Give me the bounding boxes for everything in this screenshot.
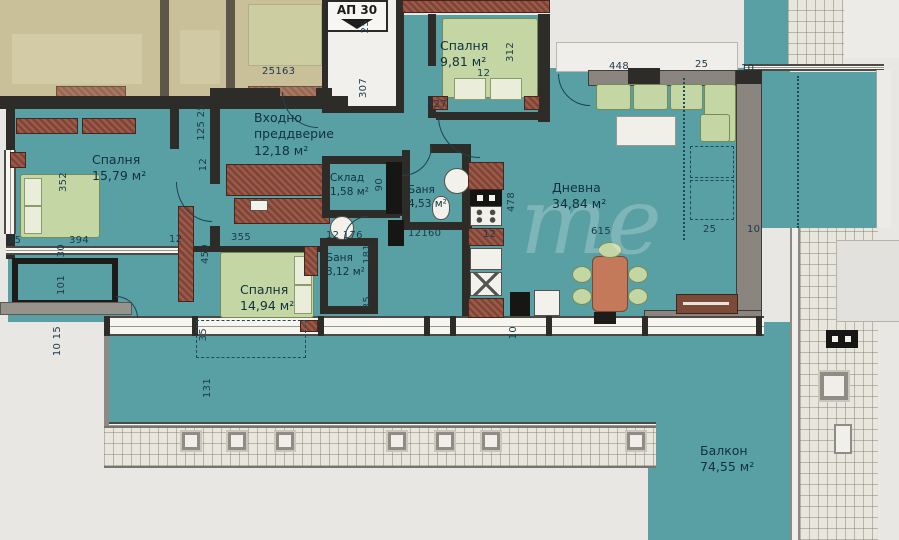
exterior-wall-strip [876,70,891,228]
paving-northeast [788,0,844,66]
room-label-storage: Склад 1,58 м² [330,172,369,199]
dim-label: 12160 [408,228,441,239]
balcony-east-parapet [790,228,800,540]
room-label-bathroom-main: Баня 4,53 м² [408,184,447,211]
neighbor-furniture [180,30,220,84]
dim-label: 352 [58,172,69,192]
neighbor-furniture [12,34,142,84]
exterior-slab [836,240,899,322]
room-area: 14,94 м² [240,298,294,314]
dim-label: 355 [231,232,251,243]
neighbor-furniture [248,4,322,66]
wardrobe [82,118,136,134]
dim-label: 25 [8,235,21,246]
wardrobe [226,164,328,196]
window-post [424,316,430,336]
room-area: 15,79 м² [92,168,146,184]
dim-label: 25 [703,224,716,235]
room-name: Спалня [240,282,294,298]
pillow [294,285,312,314]
marker-dot [832,336,838,342]
room-name: Дневна [552,180,606,196]
wall [316,88,332,96]
wall [160,0,169,100]
sink [444,168,470,194]
floor-plan: АП 30 [0,0,899,540]
duct-shaft [386,162,402,214]
wardrobe [178,206,194,302]
marker-dot [845,336,851,342]
dim-label: 10 15 [52,326,63,356]
projection-line [797,76,799,228]
dining-chair-dark [594,312,616,324]
projection-line [683,78,685,240]
wardrobe [234,198,330,224]
sofa-module [633,84,668,110]
dim-label: 307 [358,78,369,98]
exterior-marker [826,330,858,348]
room-name: Баня [408,184,447,198]
wardrobe [16,118,78,134]
wall [170,109,179,149]
sofa-module [670,84,703,110]
wall-hatched [402,0,550,13]
room-area: 3,12 м² [326,266,365,280]
sideboard [676,294,738,314]
dim-label: 615 [591,226,611,237]
room-label-balcony: Балкон 74,55 м² [700,443,754,476]
pillow [24,178,42,206]
balcony-west-edge [104,322,109,426]
wardrobe-detail [250,200,268,211]
projection-outline [196,320,306,358]
kitchen-counter [468,298,504,318]
dim-label: 90 [374,178,385,191]
window-post [546,316,552,336]
room-label-bedroom-top: Спалня 9,81 м² [440,38,488,71]
dining-chair [628,288,648,305]
room-area: 12,18 м² [254,143,334,159]
dim-label: 459 [200,244,211,264]
wall [628,68,660,84]
pillow [454,78,486,100]
dim-label: 12 [169,234,182,245]
window-post [756,316,762,336]
coffee-table [616,116,676,146]
nightstand [304,246,318,276]
dim-label: 125 25 [196,104,207,141]
cooktop [470,206,502,226]
dim-label: 10 [741,63,754,74]
room-label-entrance: Входно преддверие 12,18 м² [254,110,334,159]
nightstand [524,96,540,110]
dim-label: 394 [69,235,89,246]
dim-label: 25 [360,20,371,33]
dim-label: 25163 [262,66,295,77]
planter [820,372,848,400]
pillow [24,206,42,234]
dining-chair [572,288,592,305]
dim-label: 448 [609,61,629,72]
ground [844,0,899,58]
dim-label: 35 [362,296,373,309]
window-post [642,316,648,336]
floor-balcony-northeast [744,0,790,72]
room-name: Балкон [700,443,754,459]
room-name: Спалня [440,38,488,54]
sideboard-detail [683,302,729,305]
planter [276,432,294,450]
kitchen-counter [468,162,504,190]
dim-label: 35 [198,328,209,341]
dishwasher [534,290,560,316]
wall [218,88,280,96]
unit-label-box: АП 30 [326,0,388,32]
dim-label: 10 [747,224,760,235]
room-area: 4,53 м² [408,198,447,212]
planter [627,432,645,450]
dim-label: 327 [427,99,447,110]
dim-label: 12 [483,229,496,240]
dim-label: 12 [198,158,209,171]
dim-label: 101 [56,275,67,295]
room-name: Склад [330,172,369,186]
room-label-bedroom-bottom: Спалня 14,94 м² [240,282,294,315]
room-area: 1,58 м² [330,186,369,200]
planter [482,432,500,450]
planter [388,432,406,450]
oven [470,190,502,206]
dim-label: 478 [506,192,517,212]
dim-label: 181 [362,244,373,264]
oven-knob [477,195,483,201]
kitchen-appliance [470,272,502,296]
dim-label: 131 [202,378,213,398]
furniture-outline [690,146,734,178]
room-name: Входно [254,110,334,126]
dim-label: 12 [477,68,490,79]
exterior-fixture [834,424,852,454]
dim-label: 312 [505,42,516,62]
wall [210,88,220,184]
room-area: 74,55 м² [700,459,754,475]
wall [428,14,436,66]
unit-label: АП 30 [328,3,386,17]
armchair [700,114,730,142]
wall [226,0,235,100]
duct-shaft [388,220,404,246]
terrace-north-parapet [744,64,884,71]
furniture-outline [690,180,734,220]
dim-label: 30 [56,244,67,257]
window-post [450,316,456,336]
room-label-living: Дневна 34,84 м² [552,180,606,213]
oven-knob [489,195,495,201]
room-label-bedroom-left: Спалня 15,79 м² [92,152,146,185]
dim-label: 10 [508,326,519,339]
room-name: Спалня [92,152,146,168]
dim-label: 12 176 [326,230,363,241]
dim-label: 25 [695,59,708,70]
kitchen-appliance-dark [510,292,530,316]
room-label-bathroom-small: Баня 3,12 м² [326,252,365,279]
planter [228,432,246,450]
wall-grey [0,302,132,315]
room-name: Баня [326,252,365,266]
pillow [490,78,522,100]
sofa-module [596,84,631,110]
wall [396,0,404,112]
nightstand [10,152,26,168]
window-post [318,316,324,336]
room-area: 34,84 м² [552,196,606,212]
window [6,246,180,255]
wall [322,156,330,218]
kitchen-sink [470,248,502,270]
planter [182,432,200,450]
room-name: преддверие [254,126,334,142]
floor-terrace-east [760,72,882,228]
wall-grey [736,70,762,312]
window-post [104,316,110,336]
planter [436,432,454,450]
